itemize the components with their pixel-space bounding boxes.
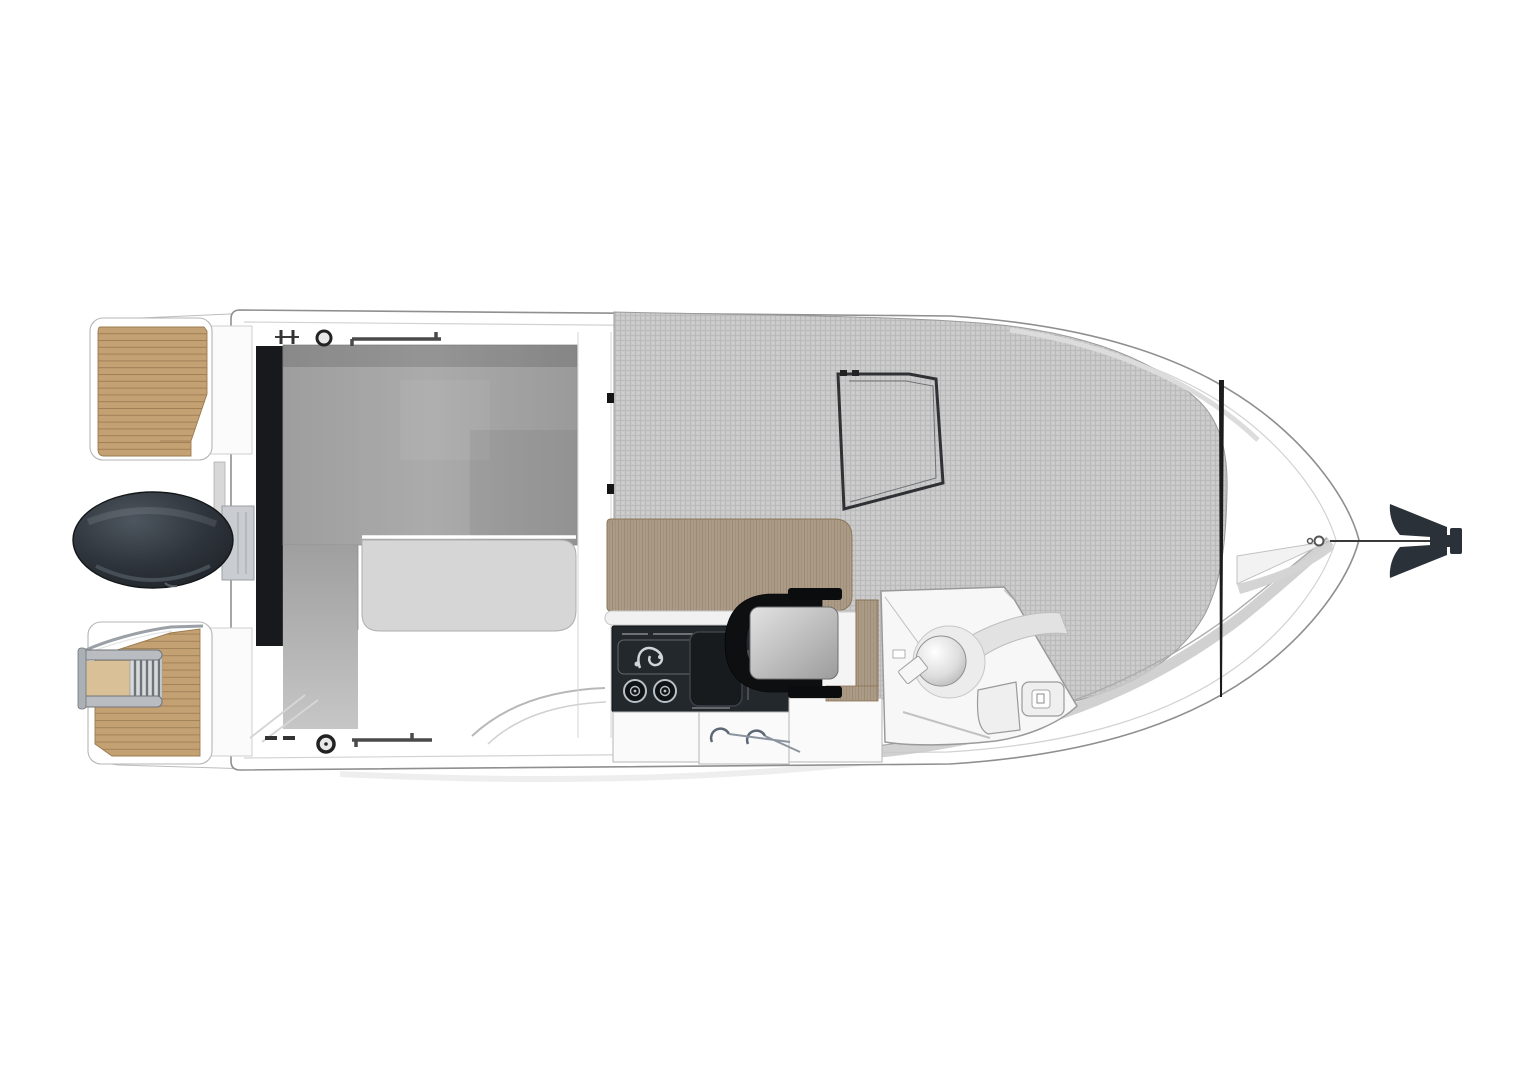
steering-wheel bbox=[916, 636, 966, 686]
ladder-tread-pad bbox=[84, 661, 131, 696]
anchor-roller bbox=[1450, 528, 1462, 554]
seat-armrest-bottom bbox=[788, 686, 842, 698]
engine-cowling bbox=[73, 492, 233, 588]
teak-deck-top bbox=[98, 327, 207, 456]
ladder-end-bar bbox=[78, 648, 86, 709]
burner-2 bbox=[654, 680, 676, 702]
latch-2 bbox=[607, 484, 614, 494]
cabinet-left bbox=[613, 712, 699, 762]
latch-1 bbox=[607, 393, 614, 403]
ladder-rail-bottom bbox=[79, 696, 162, 707]
step-hatch bbox=[1032, 690, 1050, 708]
footrest-molding bbox=[977, 682, 1020, 734]
anchor-swivel bbox=[1308, 539, 1313, 544]
transom-step-bottom bbox=[206, 628, 252, 756]
ladder-rail-top bbox=[79, 650, 162, 660]
instrument-1 bbox=[893, 650, 905, 658]
transom-door bbox=[256, 346, 283, 646]
outboard-engine bbox=[73, 492, 254, 588]
faucet-knob-2 bbox=[658, 655, 662, 659]
swim-platform-starboard bbox=[78, 622, 212, 764]
filler-cap-center bbox=[324, 742, 328, 746]
cockpit-seat-cushion bbox=[362, 540, 576, 631]
windshield-hinge-1 bbox=[840, 370, 847, 376]
cockpit-side-bench bbox=[283, 545, 358, 729]
boat-floor-plan-image bbox=[0, 0, 1529, 1080]
deck-filler-cap-top bbox=[317, 331, 331, 345]
faucet-knob-1 bbox=[635, 662, 640, 667]
transom-step-top bbox=[206, 326, 252, 454]
seat-cushion bbox=[750, 607, 838, 679]
cockpit-bench-back-band bbox=[283, 345, 577, 367]
bench-shade-2 bbox=[470, 430, 577, 545]
swim-platform-port bbox=[90, 318, 212, 460]
cabinet-drawer bbox=[699, 712, 789, 764]
wood-side-panel bbox=[856, 600, 878, 694]
boarding-ladder bbox=[78, 648, 162, 709]
cabinet-right bbox=[789, 698, 882, 762]
boat-floor-plan-page bbox=[0, 0, 1529, 1080]
seat-armrest-top bbox=[788, 588, 842, 600]
burner-1 bbox=[624, 680, 646, 702]
anchor-shackle bbox=[1315, 537, 1324, 546]
windshield-hinge-2 bbox=[852, 370, 859, 376]
